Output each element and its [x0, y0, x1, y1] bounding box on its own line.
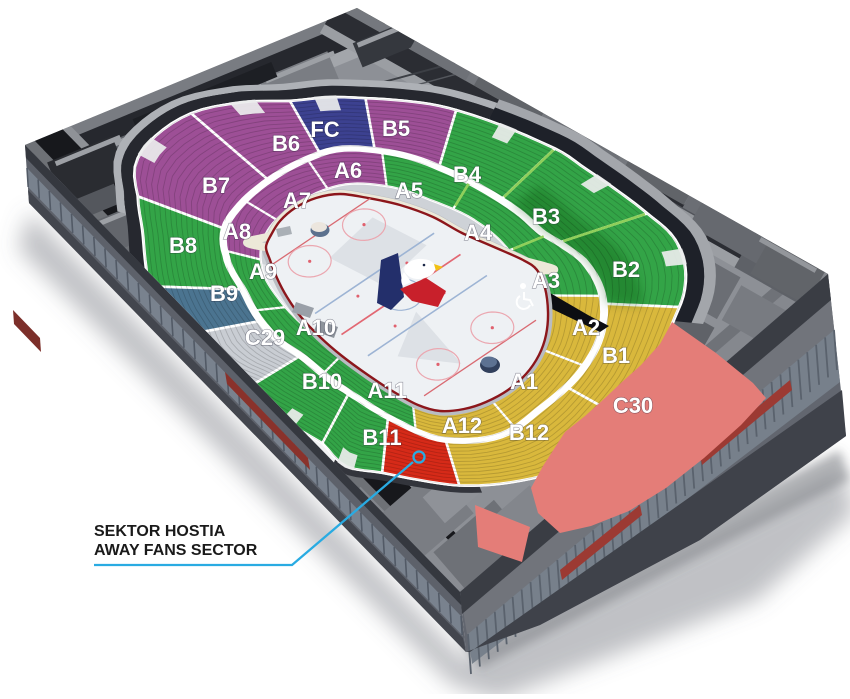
svg-text:B12: B12 — [509, 420, 549, 445]
svg-text:B2: B2 — [612, 257, 640, 282]
svg-text:A2: A2 — [572, 315, 600, 340]
svg-text:B8: B8 — [169, 233, 197, 258]
svg-text:A3: A3 — [532, 268, 560, 293]
svg-text:A9: A9 — [249, 259, 277, 284]
svg-text:C29: C29 — [245, 325, 285, 350]
svg-text:SEKTOR HOSTIA: SEKTOR HOSTIA — [94, 523, 226, 540]
svg-text:FC: FC — [310, 117, 339, 142]
svg-text:A1: A1 — [510, 369, 538, 394]
svg-text:B4: B4 — [453, 162, 482, 187]
svg-text:B1: B1 — [602, 343, 630, 368]
svg-text:B5: B5 — [382, 116, 410, 141]
svg-text:AWAY FANS SECTOR: AWAY FANS SECTOR — [94, 542, 258, 559]
svg-text:B9: B9 — [210, 281, 238, 306]
svg-text:B10: B10 — [302, 369, 342, 394]
svg-text:A7: A7 — [283, 188, 311, 213]
svg-text:A5: A5 — [395, 178, 423, 203]
svg-text:A11: A11 — [367, 378, 406, 403]
svg-text:B11: B11 — [362, 425, 401, 450]
svg-text:B6: B6 — [272, 131, 300, 156]
svg-text:B7: B7 — [202, 173, 230, 198]
svg-text:B3: B3 — [532, 204, 560, 229]
svg-text:A10: A10 — [296, 315, 336, 340]
svg-text:A12: A12 — [442, 413, 482, 438]
svg-text:A6: A6 — [334, 158, 362, 183]
svg-text:C30: C30 — [613, 393, 653, 418]
svg-text:A4: A4 — [464, 220, 493, 245]
svg-text:A8: A8 — [223, 219, 251, 244]
